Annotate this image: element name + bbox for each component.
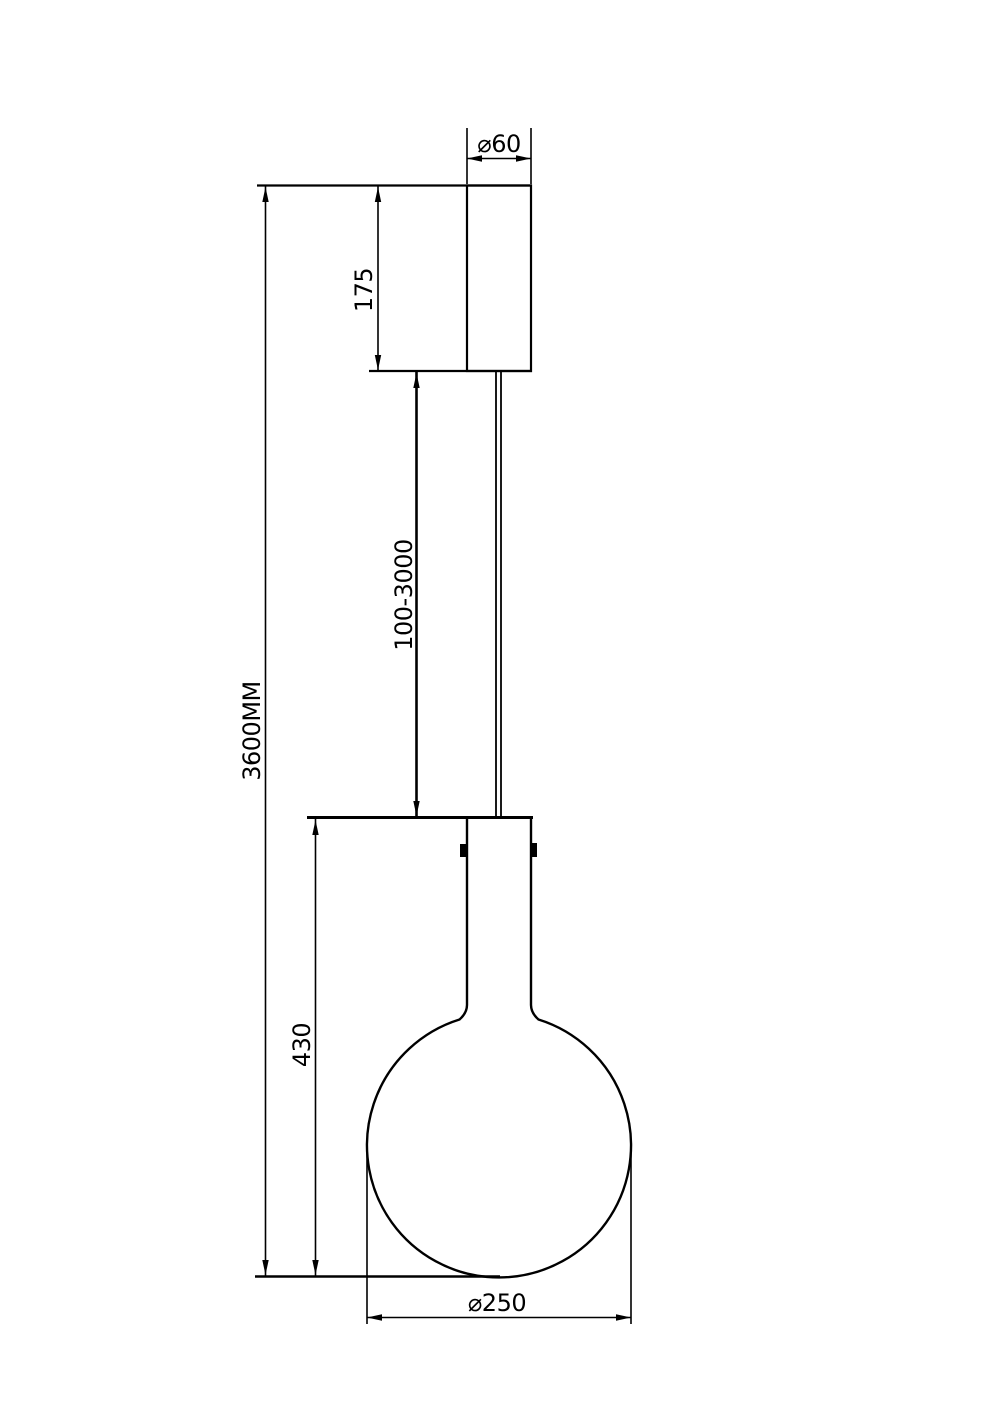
canopy-diameter-label: ⌀60 [477, 130, 521, 158]
lamp-body-height-label: 430 [288, 1023, 316, 1067]
set-screw-right [530, 843, 537, 857]
overall-height-label: 3600MM [238, 681, 266, 781]
set-screw-left [460, 844, 467, 857]
arrowhead-down-icon [413, 801, 419, 816]
pendant-lamp-dimension-drawing: ⌀60 175 100-3000 3600MM 430 ⌀250 [0, 0, 992, 1403]
arrowhead-left-icon [367, 1314, 382, 1320]
arrowhead-up-icon [262, 187, 268, 202]
globe-diameter-label: ⌀250 [468, 1289, 526, 1317]
canopy-body [467, 186, 531, 372]
arrowhead-up-icon [312, 820, 318, 835]
suspension-length-label: 100-3000 [390, 539, 418, 651]
glass-globe-and-socket-profile [367, 818, 631, 1277]
arrowhead-right-icon [616, 1314, 631, 1320]
arrowhead-down-icon [375, 355, 381, 370]
arrowhead-down-icon [262, 1260, 268, 1275]
arrowhead-up-icon [413, 373, 419, 388]
canopy-height-label: 175 [350, 268, 378, 312]
drawing-sheet: ⌀60 175 100-3000 3600MM 430 ⌀250 [0, 0, 992, 1403]
arrowhead-down-icon [312, 1260, 318, 1275]
arrowhead-up-icon [375, 187, 381, 202]
